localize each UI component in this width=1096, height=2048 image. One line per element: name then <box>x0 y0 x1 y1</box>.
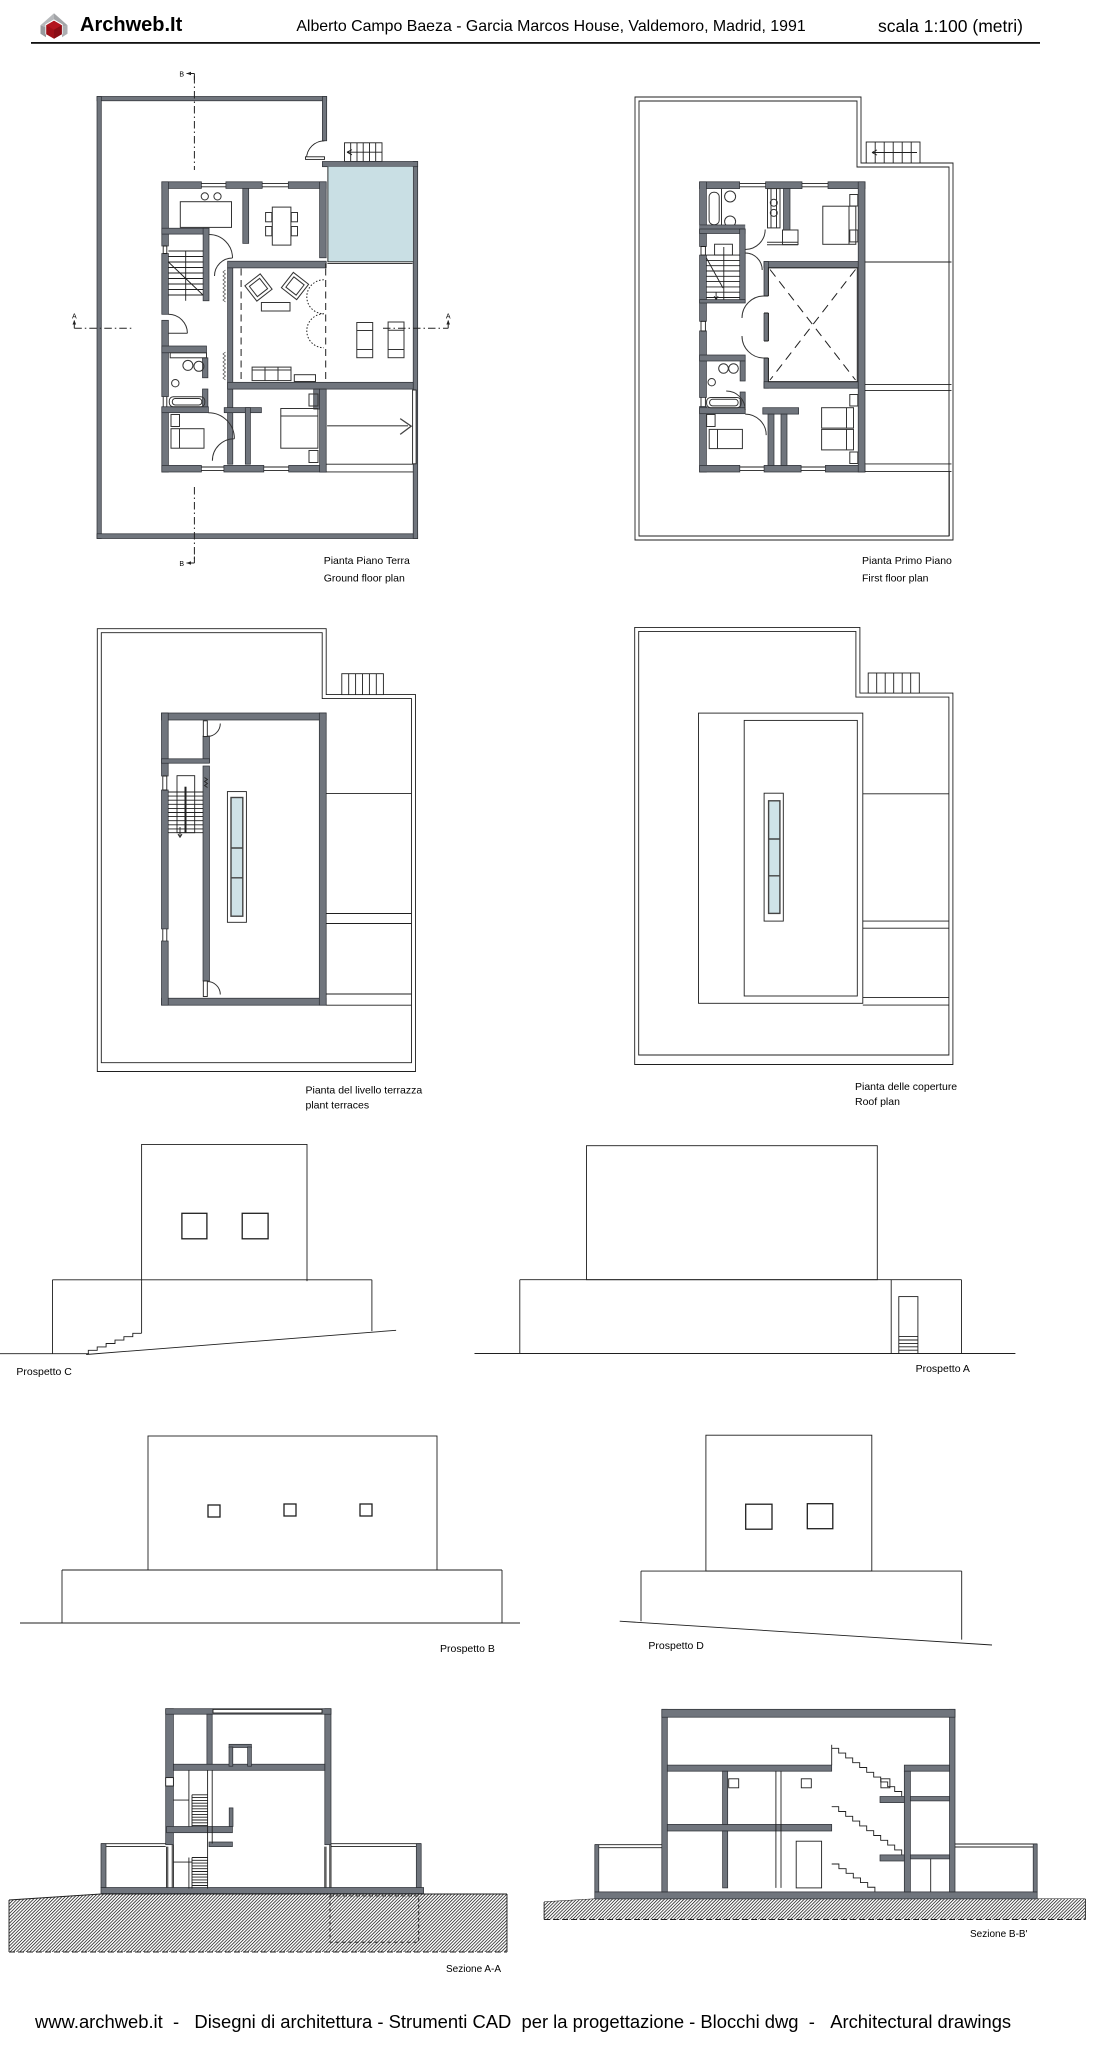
svg-text:Pianta del livello terrazza: Pianta del livello terrazza <box>306 1085 423 1097</box>
svg-text:Prospetto D: Prospetto D <box>648 1640 704 1652</box>
svg-text:B: B <box>179 72 184 79</box>
svg-text:scala 1:100 (metri): scala 1:100 (metri) <box>878 16 1023 36</box>
svg-text:plant terraces: plant terraces <box>306 1100 370 1112</box>
svg-text:www.archweb.it - Disegni di: www.archweb.it - Disegni di architettura… <box>34 2011 1011 2032</box>
svg-text:First floor plan: First floor plan <box>862 573 929 585</box>
svg-text:Prospetto C: Prospetto C <box>16 1366 72 1378</box>
svg-text:Sezione B-B': Sezione B-B' <box>970 1929 1028 1940</box>
svg-text:Prospetto B: Prospetto B <box>440 1643 495 1655</box>
svg-text:B: B <box>179 561 184 568</box>
svg-text:Sezione A-A: Sezione A-A <box>446 1964 501 1975</box>
svg-text:Prospetto A: Prospetto A <box>916 1363 970 1375</box>
svg-text:Pianta delle coperture: Pianta delle coperture <box>855 1081 957 1093</box>
svg-text:Pianta Piano Terra: Pianta Piano Terra <box>324 555 410 567</box>
svg-text:Alberto Campo Baeza - Garcia M: Alberto Campo Baeza - Garcia Marcos Hous… <box>296 18 805 35</box>
svg-text:Archweb.It: Archweb.It <box>80 14 183 36</box>
svg-text:A: A <box>72 314 77 321</box>
svg-text:Pianta Primo Piano: Pianta Primo Piano <box>862 555 952 567</box>
svg-text:Ground floor plan: Ground floor plan <box>324 573 405 585</box>
svg-text:A: A <box>446 314 451 321</box>
svg-text:Roof plan: Roof plan <box>855 1096 900 1108</box>
